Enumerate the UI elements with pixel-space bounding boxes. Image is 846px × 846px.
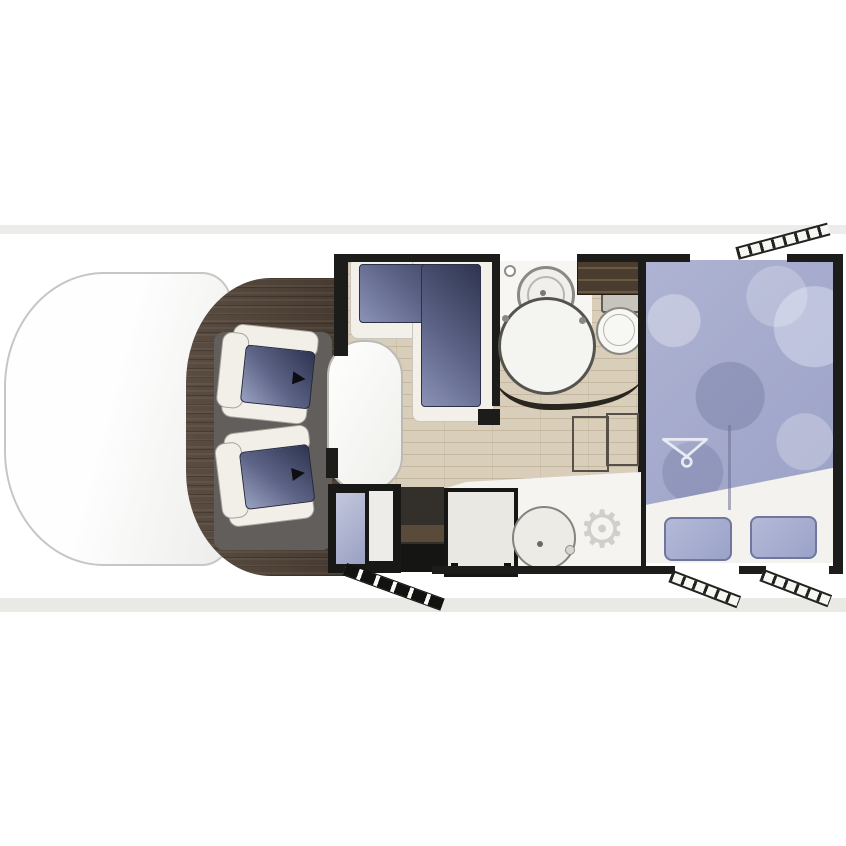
right-wall xyxy=(833,254,843,574)
mattress-seam xyxy=(728,425,731,510)
bed-step xyxy=(606,413,639,466)
top-wall xyxy=(334,254,497,262)
seat-arrow-icon: ▶ xyxy=(292,369,307,387)
entry-step-well xyxy=(401,487,444,572)
hanger-icon xyxy=(658,432,712,472)
sink-drain xyxy=(537,541,543,547)
floorplan-canvas: ▶ ▶ xyxy=(0,0,846,846)
bench-side-wall xyxy=(334,254,348,356)
shower-hinge xyxy=(502,315,509,322)
toilet-seat xyxy=(603,314,635,346)
wall-stub xyxy=(478,409,500,425)
dinette-table xyxy=(327,340,403,492)
shower-hinge xyxy=(579,317,586,324)
bottom-wall xyxy=(432,566,675,574)
bed-storage-drawer-left xyxy=(664,517,732,561)
image-band-top xyxy=(0,225,846,234)
basin-tap xyxy=(504,265,516,277)
stove xyxy=(444,488,518,577)
bed-storage-drawer-right xyxy=(750,516,817,559)
bed-step xyxy=(572,416,609,472)
wall-post xyxy=(326,448,338,478)
fan-vent-icon: ⚙ xyxy=(576,504,628,556)
kitchen-sink xyxy=(512,506,576,570)
fridge-door xyxy=(336,493,365,564)
cabinet-door xyxy=(369,491,393,561)
top-wall xyxy=(577,254,690,262)
basin-drain xyxy=(540,290,546,296)
entry-step xyxy=(401,525,444,542)
seat-arrow-icon: ▶ xyxy=(291,464,306,482)
sink-tap xyxy=(565,545,575,555)
bottom-wall xyxy=(829,566,841,574)
passenger-seat: ▶ xyxy=(213,423,324,528)
seat-cushion: ▶ xyxy=(240,344,316,409)
driver-seat: ▶ xyxy=(214,322,323,426)
l-bench-cushion xyxy=(421,264,481,407)
seat-cushion: ▶ xyxy=(239,444,316,510)
rear-bed xyxy=(646,260,833,563)
